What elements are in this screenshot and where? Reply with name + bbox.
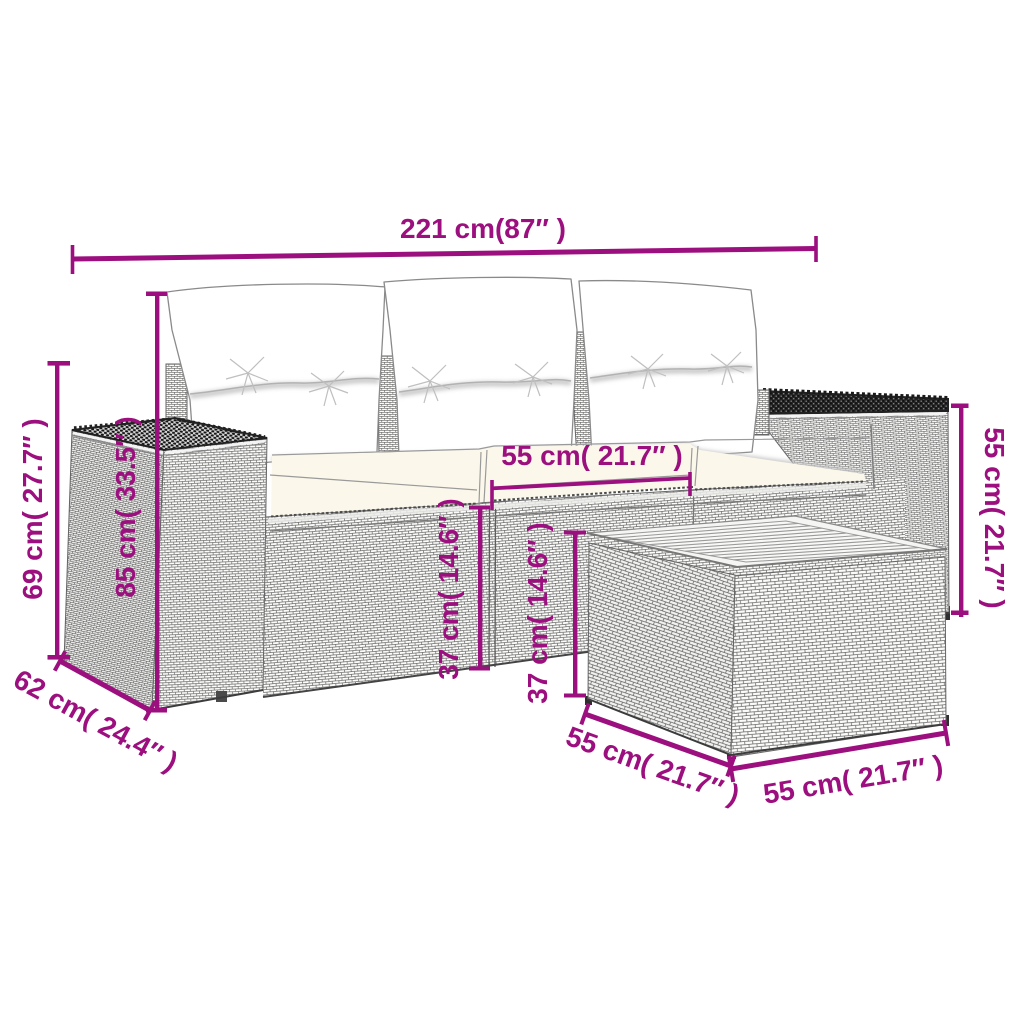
svg-text:55 cm( 21.7″ ): 55 cm( 21.7″ )	[501, 440, 683, 471]
svg-text:55 cm( 21.7″ ): 55 cm( 21.7″ )	[979, 427, 1010, 609]
svg-text:37 cm( 14.6″ ): 37 cm( 14.6″ )	[433, 498, 464, 680]
svg-text:37 cm( 14.6″ ): 37 cm( 14.6″ )	[522, 522, 553, 704]
svg-text:221 cm(87″ ): 221 cm(87″ )	[400, 213, 566, 244]
svg-text:85 cm( 33.5″ ): 85 cm( 33.5″ )	[110, 416, 141, 598]
svg-text:69 cm( 27.7″ ): 69 cm( 27.7″ )	[17, 418, 48, 600]
